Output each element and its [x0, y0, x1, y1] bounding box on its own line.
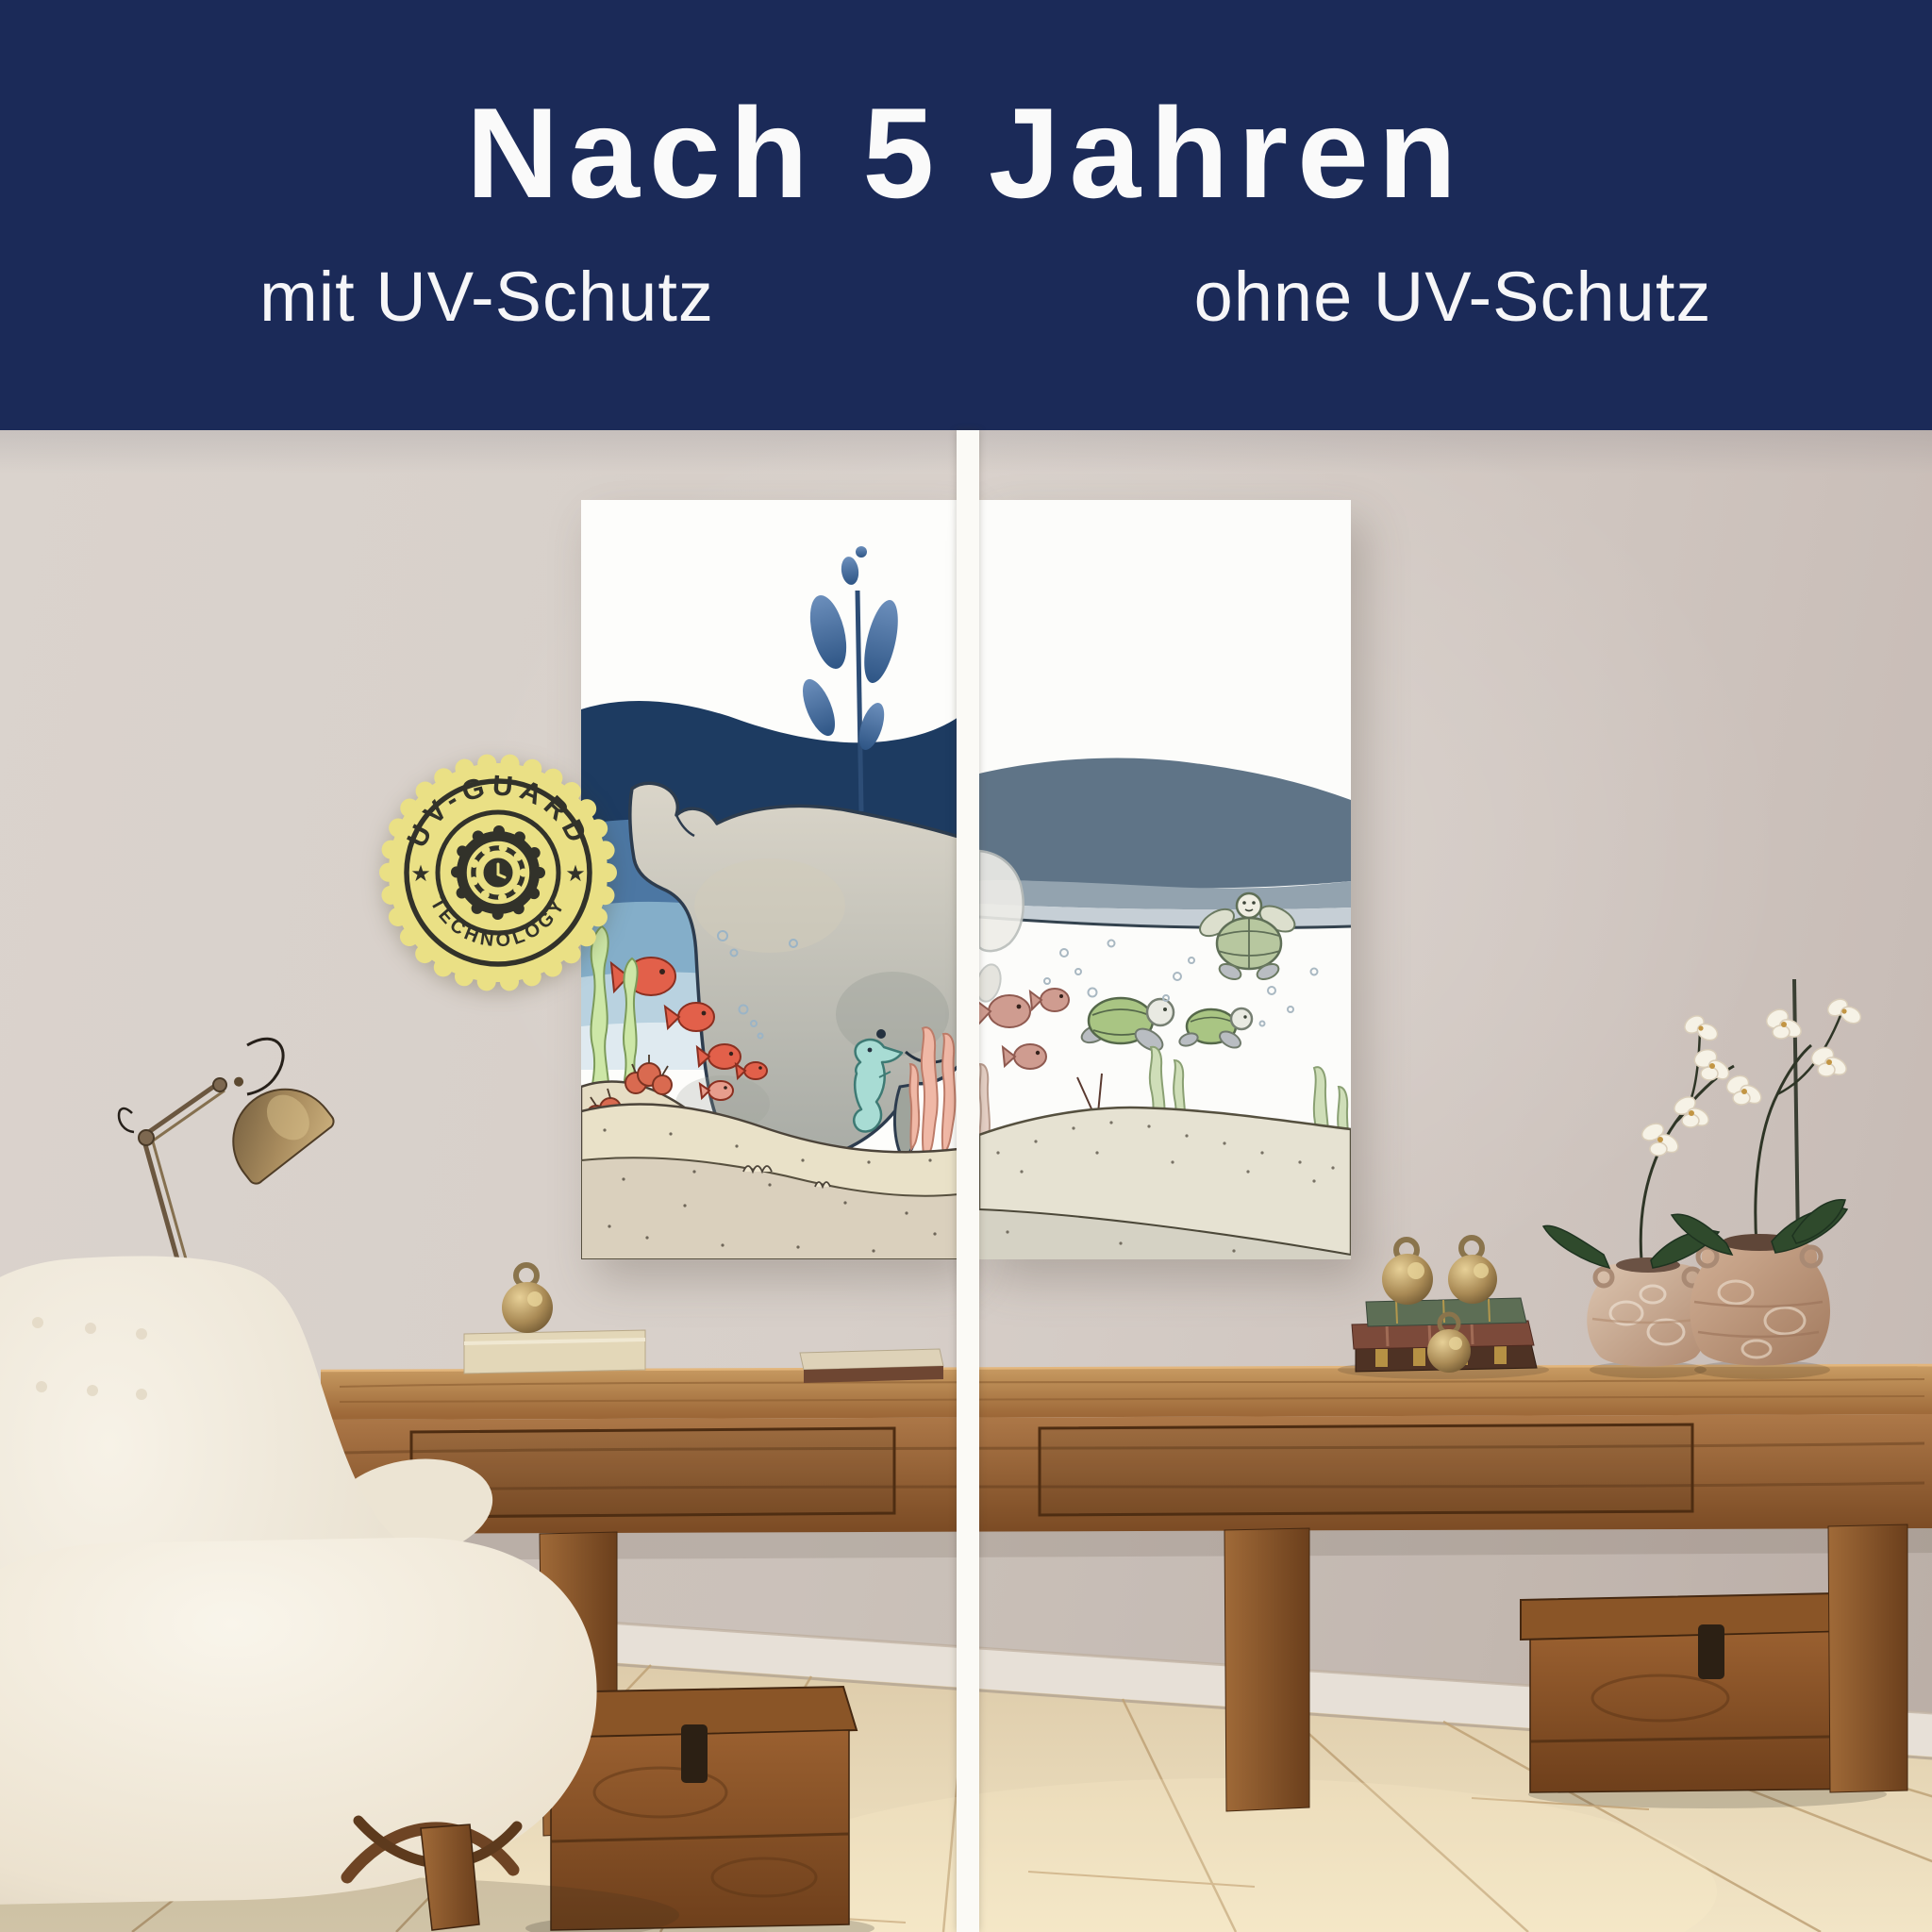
- badge-star-icon-left: ★: [410, 861, 431, 887]
- lamp-shade: [195, 1046, 337, 1187]
- table-leg: [1828, 1524, 1907, 1792]
- brass-bell-small: [502, 1265, 553, 1333]
- chest-latch: [1698, 1624, 1724, 1679]
- drawer-right: [1040, 1424, 1692, 1515]
- table-leg: [1224, 1528, 1309, 1811]
- header-banner: Nach 5 Jahren mit UV-Schutz ohne UV-Schu…: [0, 0, 1932, 430]
- page-title: Nach 5 Jahren: [0, 79, 1932, 226]
- product-image: Nach 5 Jahren mit UV-Schutz ohne UV-Schu…: [0, 0, 1932, 1932]
- label-without-uv-protection: ohne UV-Schutz: [1132, 257, 1774, 337]
- wooden-tray: [464, 1330, 645, 1374]
- label-with-uv-protection: mit UV-Schutz: [185, 257, 789, 337]
- armchair-arm: [0, 1538, 597, 1932]
- badge-gear-clock-icon: [457, 831, 540, 914]
- book-flat: [800, 1349, 943, 1383]
- desk-lamp: [119, 1039, 337, 1266]
- orchid-flowers: [1640, 996, 1864, 1157]
- split-divider: [957, 430, 979, 1932]
- decorative-vase-right: [1690, 1234, 1830, 1379]
- badge-star-icon-right: ★: [565, 861, 586, 887]
- chest-latch: [681, 1724, 708, 1783]
- uv-guard-badge: UV-GUARD TECHNOLOGY ★ ★: [375, 750, 621, 995]
